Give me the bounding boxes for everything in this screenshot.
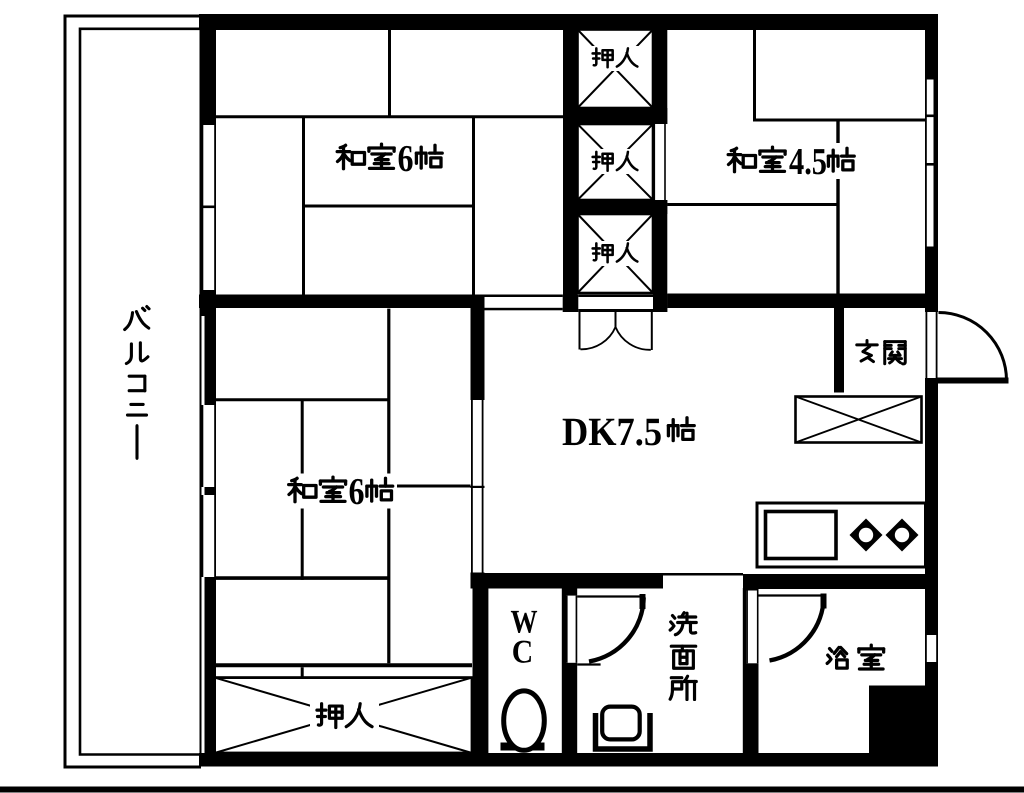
svg-text:DK7.5: DK7.5 <box>562 409 662 454</box>
svg-text:4.5: 4.5 <box>789 141 827 183</box>
svg-text:6: 6 <box>398 138 414 180</box>
svg-text:C: C <box>512 635 533 671</box>
svg-text:6: 6 <box>349 471 365 513</box>
